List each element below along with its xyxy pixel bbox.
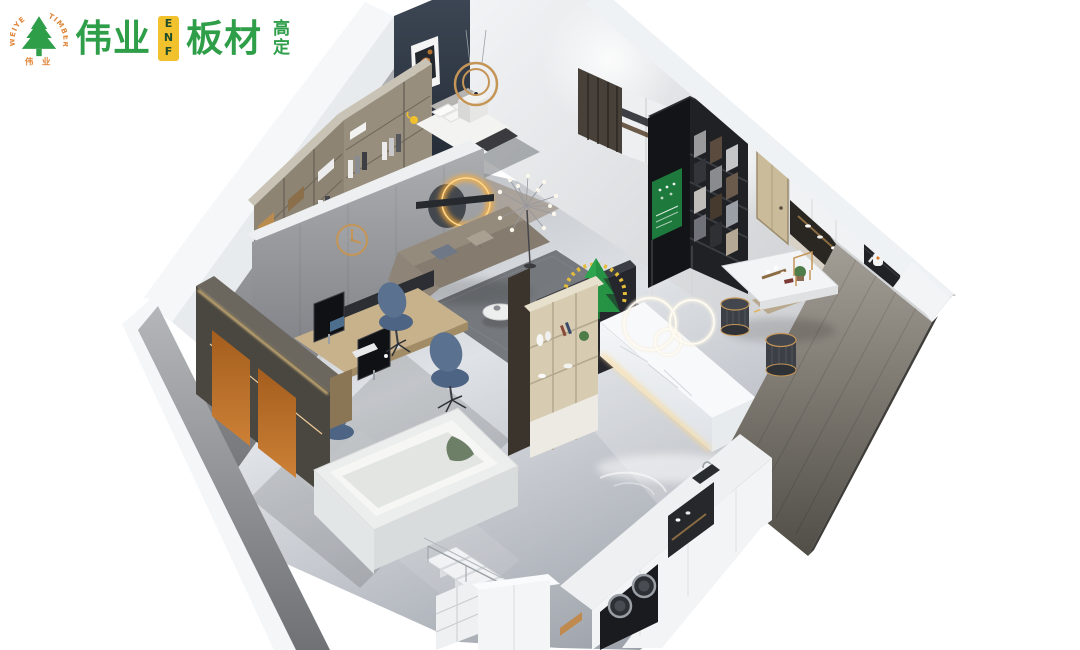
- logo-suffix-vertical: 高定: [270, 19, 287, 57]
- badge-caption: 伟 业: [25, 55, 53, 67]
- brand-badge: WEIYE TIMBER 伟 业: [10, 8, 68, 68]
- brand-logo: WEIYE TIMBER 伟 业 伟业 ENF 板材 高定: [10, 8, 287, 68]
- wall-clock: [337, 225, 367, 255]
- screenshot-root: WEIYE TIMBER 伟 业 伟业 ENF 板材 高定: [0, 0, 1080, 650]
- enf-certification-tag: ENF: [158, 16, 179, 61]
- enf-tag-text: ENF: [163, 17, 174, 59]
- pine-tree-icon: [22, 16, 56, 56]
- scene-render: [0, 0, 1080, 650]
- decor-shelf-unit: [508, 268, 604, 458]
- logo-wordmark-first: 伟业: [75, 20, 151, 57]
- badge-arc-text-left: WEIYE: [10, 14, 27, 46]
- logo-wordmark-second: 板材: [186, 20, 262, 57]
- linen-cabinet: [472, 574, 560, 650]
